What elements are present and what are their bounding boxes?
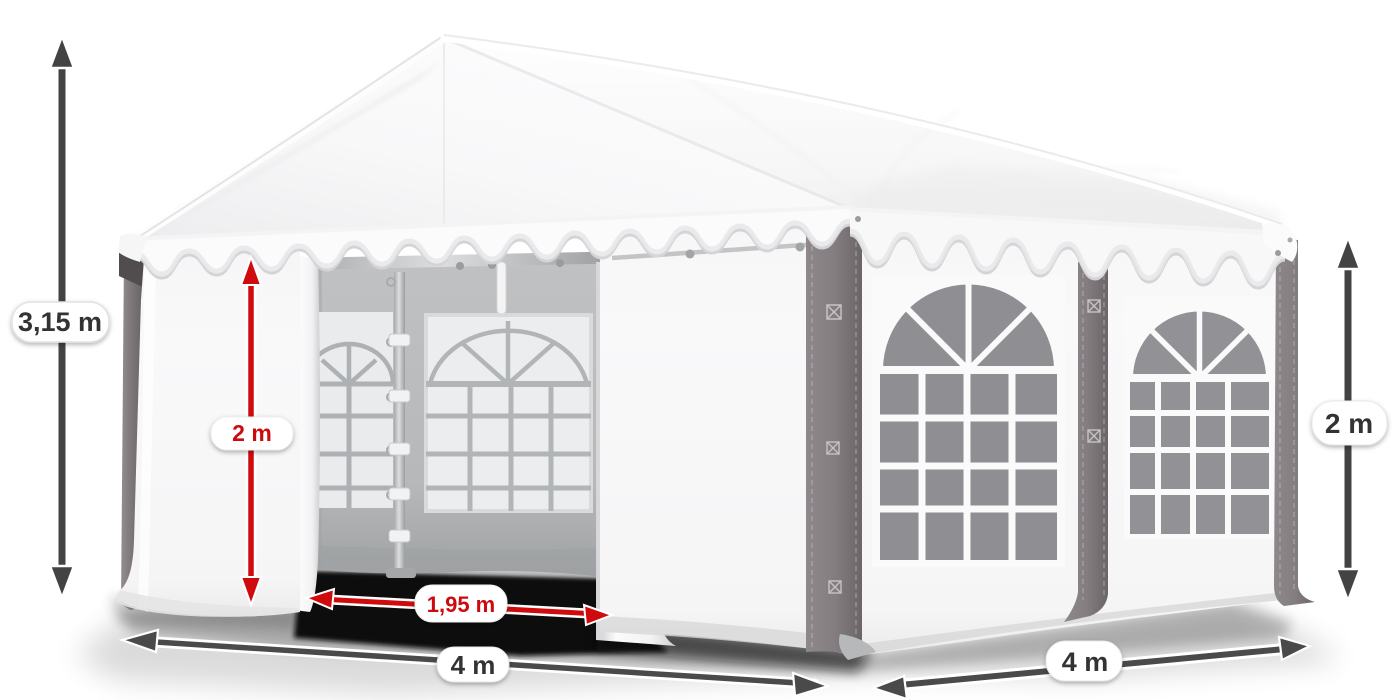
svg-text:4 m: 4 m [451, 650, 496, 680]
svg-text:2 m: 2 m [232, 420, 272, 446]
svg-text:3,15 m: 3,15 m [18, 307, 102, 337]
svg-text:1,95 m: 1,95 m [427, 592, 496, 617]
svg-text:4 m: 4 m [1062, 647, 1109, 677]
svg-text:2 m: 2 m [1325, 408, 1373, 439]
